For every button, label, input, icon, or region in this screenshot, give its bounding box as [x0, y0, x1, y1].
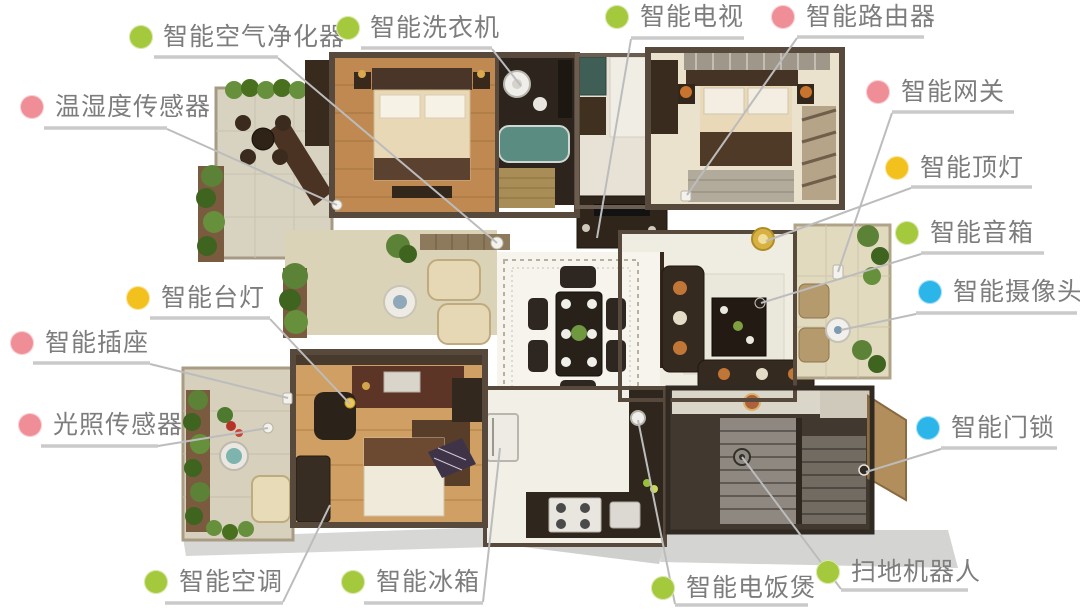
speaker-dot	[895, 221, 919, 245]
desk-lamp-label: 智能台灯	[161, 283, 265, 313]
ac-label: 智能空调	[179, 567, 283, 597]
ac-dot	[144, 570, 168, 594]
fridge-dot	[341, 570, 365, 594]
socket-label: 智能插座	[45, 328, 149, 358]
sweeping-robot-label: 扫地机器人	[851, 557, 981, 587]
camera-label: 智能摄像头	[953, 277, 1080, 307]
tv-label: 智能电视	[640, 2, 744, 32]
air-purifier-dot	[129, 25, 153, 49]
sweeping-robot-dot	[816, 560, 840, 584]
ceiling-light-dot	[885, 156, 909, 180]
gateway-dot	[866, 80, 890, 104]
door-lock-dot	[916, 416, 940, 440]
smart-home-floorplan-infographic: 智能空气净化器智能洗衣机智能电视智能路由器智能网关智能顶灯智能音箱智能摄像头智能…	[0, 0, 1080, 612]
temp-humidity-sensor-dot	[20, 95, 44, 119]
gateway-label: 智能网关	[901, 77, 1005, 107]
socket-dot	[10, 331, 34, 355]
desk-lamp-dot	[126, 286, 150, 310]
router-label: 智能路由器	[806, 2, 936, 32]
router-dot	[771, 5, 795, 29]
rice-cooker-dot	[651, 576, 675, 600]
washing-machine-dot	[336, 16, 360, 40]
air-purifier-label: 智能空气净化器	[163, 22, 345, 52]
door-lock-label: 智能门锁	[951, 413, 1055, 443]
speaker-label: 智能音箱	[930, 218, 1034, 248]
ceiling-light-label: 智能顶灯	[920, 153, 1024, 183]
temp-humidity-sensor-label: 温湿度传感器	[55, 92, 211, 122]
light-sensor-label: 光照传感器	[53, 410, 183, 440]
annotations-layer: 智能空气净化器智能洗衣机智能电视智能路由器智能网关智能顶灯智能音箱智能摄像头智能…	[0, 0, 1080, 612]
washing-machine-label: 智能洗衣机	[370, 13, 500, 43]
camera-dot	[918, 280, 942, 304]
rice-cooker-label: 智能电饭煲	[686, 573, 816, 603]
light-sensor-dot	[18, 413, 42, 437]
fridge-label: 智能冰箱	[376, 567, 480, 597]
tv-dot	[605, 5, 629, 29]
